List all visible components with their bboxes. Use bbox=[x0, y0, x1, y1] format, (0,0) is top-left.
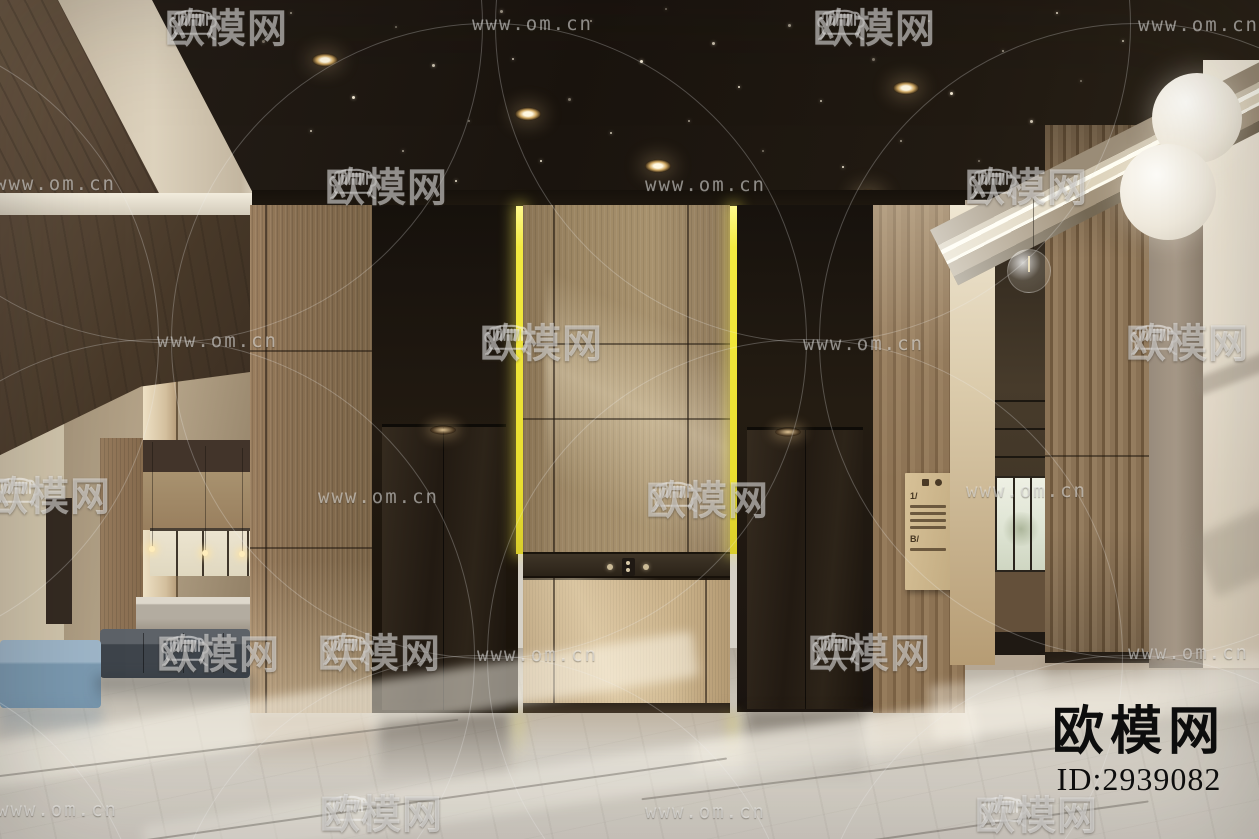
site-logo: 欧模网 ID:2939082 bbox=[1036, 704, 1242, 798]
lobby-render-scene: 1/ B/ 欧模网www.om bbox=[0, 0, 1259, 839]
logo-brand-text: 欧模网 bbox=[1036, 704, 1242, 761]
logo-id-text: ID:2939082 bbox=[1036, 761, 1242, 798]
